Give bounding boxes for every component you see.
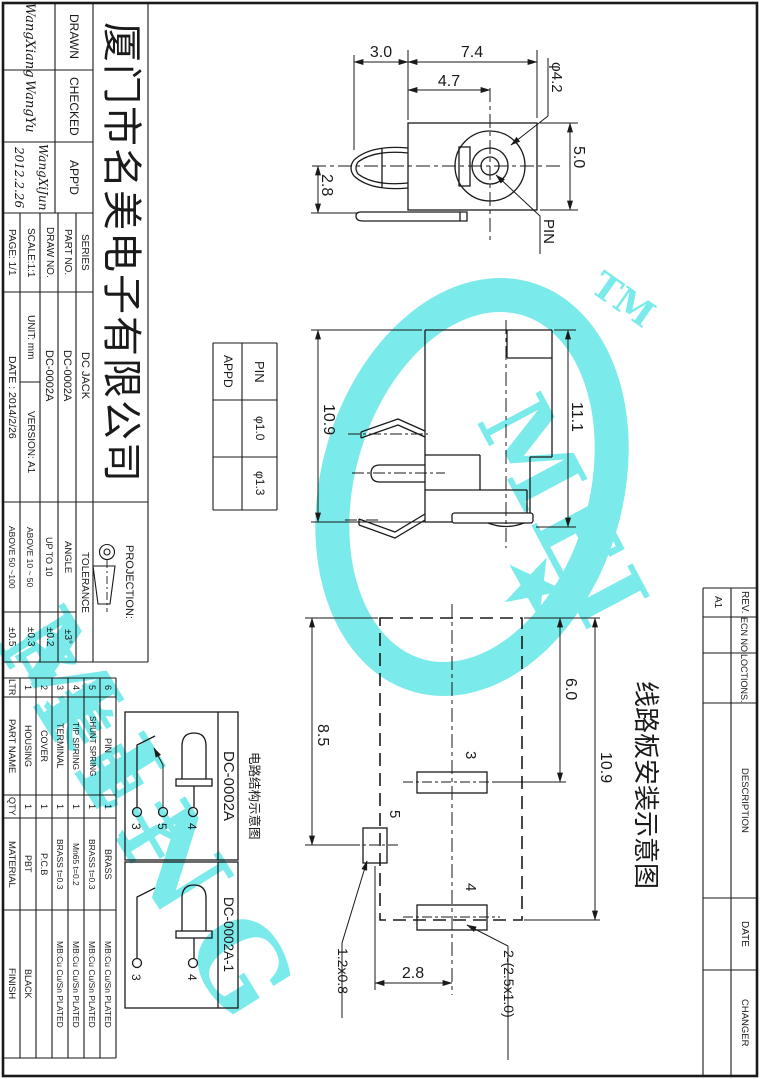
- parts-row1-finish: BLACK: [20, 910, 36, 1058]
- circuit-box1-label: DC-0002A: [218, 712, 238, 860]
- parts-row5-ltr: 5: [84, 678, 100, 697]
- pcb-pad4-label: 4: [462, 883, 479, 891]
- parts-row1-ltr: 1: [20, 678, 36, 697]
- parts-row6-name: PIN: [100, 697, 116, 795]
- circuit-caption: 电路结构示意图: [245, 743, 263, 848]
- part-no-value: DC-0002A: [58, 292, 76, 460]
- parts-row4-ltr: 4: [68, 678, 84, 697]
- tolerance-upto-label: UP TO 10: [40, 502, 58, 612]
- parts-row3-name: TERMINAL: [52, 697, 68, 795]
- pcb-callout-pad5: 1.2x0.8: [335, 948, 351, 994]
- scale-label: SCALE:1:1: [20, 213, 40, 292]
- appd-label: APP'D: [55, 142, 93, 213]
- dim-body: 7.4: [461, 44, 483, 61]
- dim-center: 4.7: [438, 73, 460, 90]
- parts-row2-ltr: 2: [36, 678, 52, 697]
- dim-pcb-bottom: 2.8: [402, 965, 424, 982]
- unit-label: UNIT: mm: [20, 292, 40, 382]
- pcb-pad5-label: 5: [386, 810, 403, 818]
- tolerance-angle-label: ANGLE: [58, 502, 76, 612]
- dim-fork: 3.0: [370, 44, 392, 61]
- tolerance-upto-value: ±0.2: [40, 612, 58, 662]
- tolerance-angle-value: ±3°: [58, 612, 76, 662]
- parts-row5-qty: 1: [84, 795, 100, 818]
- parts-row6-ltr: 6: [100, 678, 116, 697]
- dim-height: 5.0: [570, 146, 587, 168]
- appd-signature: WangXiJun 2012.2.26: [3, 142, 55, 213]
- parts-row5-finish: MB:Cu Cu/Sn PLATED: [84, 910, 100, 1058]
- circuit-box2-label: DC-0002A-1: [218, 862, 238, 1008]
- circuit-b2-pin4: 4: [185, 974, 199, 981]
- checked-label: CHECKED: [55, 70, 93, 142]
- pin-table-pin-header: PIN: [242, 343, 277, 400]
- watermark-c-ring: [289, 262, 655, 713]
- parts-row5-material: BRASS t=0.3: [84, 818, 100, 910]
- parts-header-ltr: LTR: [3, 678, 20, 697]
- parts-row4-finish: MB:Cu Cu/Sn PLATED: [68, 910, 84, 1058]
- parts-row6-finish: MB:Cu Cu/Sn PLATED: [100, 910, 116, 1058]
- circuit-b1-pin5: 5: [155, 823, 169, 830]
- pcb-caption: 线路板安装示意图: [630, 680, 662, 890]
- dim-below: 2.8: [318, 174, 335, 196]
- projection-symbol: [93, 545, 115, 613]
- pcb-pad3-label: 3: [462, 751, 479, 759]
- parts-row3-finish: MB:Cu Cu/Sn PLATED: [52, 910, 68, 1058]
- rev-value: A1: [703, 588, 731, 617]
- parts-header-finish: FINISH: [3, 910, 20, 1058]
- parts-row2-name: COVER: [36, 697, 52, 795]
- dim-side-left: 10.9: [320, 404, 337, 435]
- checked-signature: WangYu: [3, 70, 55, 142]
- circuit-b2-pin3: 3: [129, 974, 143, 981]
- parts-header-qty: QTY: [3, 795, 20, 818]
- parts-row3-material: BRASS t=0.3: [52, 818, 68, 910]
- draw-no-value: DC-0002A: [40, 292, 58, 460]
- projection-label: PROJECTION:: [116, 502, 142, 662]
- dim-pcb-left: 8.5: [314, 724, 331, 746]
- dim-pcb-inner: 6.0: [562, 678, 579, 700]
- tolerance-above50-label: ABOVE 50 ~100: [3, 502, 20, 612]
- circuit-b1-pin3: 3: [129, 823, 143, 830]
- ecn-no-label: ECN NO.: [731, 617, 757, 653]
- date-label: DATE : 2014/2/26: [3, 292, 20, 502]
- tolerance-above50-value: ±0.5: [3, 612, 20, 662]
- dim-side-right: 11.1: [568, 402, 585, 432]
- rev-label: REV.: [731, 588, 757, 617]
- pcb-callout-pads: 2-(2.5x1.0): [501, 950, 517, 1018]
- draw-no-label: DRAW NO.: [40, 213, 58, 292]
- pin-table-option-1: φ1.0: [242, 400, 277, 457]
- parts-row4-name: TIP SPRING: [68, 697, 84, 795]
- side-view: 10.9 11.1: [311, 320, 585, 548]
- parts-header-material: MATERIAL: [3, 818, 20, 910]
- drawing-sheet: MING MEI TM 名美电子 ★: [0, 0, 762, 1079]
- front-pin-label: PIN: [540, 219, 557, 244]
- parts-row4-material: Mn65 t=0.2: [68, 818, 84, 910]
- parts-row6-qty: 1: [100, 795, 116, 818]
- series-label: SERIES: [76, 213, 93, 292]
- parts-row1-material: PBT: [20, 818, 36, 910]
- parts-row2-material: P.C.B: [36, 818, 52, 910]
- front-view: 3.0 7.4 4.7 φ4.2 5.0 2.8 PIN: [311, 44, 587, 254]
- drawn-label: DRAWN: [55, 3, 93, 70]
- description-label: DESCRIPTION: [731, 703, 757, 898]
- version-label: VERSION: A1: [20, 382, 40, 502]
- pin-table-option-2: φ1.3: [242, 457, 277, 510]
- pin-table-appd-header: APPD: [213, 343, 242, 400]
- dim-pcb-outer: 10.9: [597, 752, 614, 783]
- appd-signature-date: 2012.2.26: [7, 142, 31, 213]
- rev-date-label: DATE: [731, 898, 757, 970]
- locations-label: LOCTIONS.: [731, 653, 757, 703]
- parts-row1-name: HOUSING: [20, 697, 36, 795]
- tolerance-above10-label: ABOVE 10 ~ 50: [20, 502, 40, 612]
- parts-row1-qty: 1: [20, 795, 36, 818]
- changer-label: CHANGER: [731, 970, 757, 1076]
- tolerance-label: TOLERANCE: [76, 502, 93, 662]
- drawn-signature: WangXiang: [3, 3, 55, 70]
- series-value: DC JACK: [76, 292, 93, 460]
- circuit-b1-pin4: 4: [185, 823, 199, 830]
- page-label: PAGE: 1/1: [3, 213, 20, 292]
- parts-row3-ltr: 3: [52, 678, 68, 697]
- parts-row2-qty: 1: [36, 795, 52, 818]
- tolerance-above10-value: ±0.3: [20, 612, 40, 662]
- parts-row6-material: BRASS: [100, 818, 116, 910]
- part-no-label: PART NO.: [58, 213, 76, 292]
- parts-row5-name: SHUNT SPRING: [84, 697, 100, 795]
- company-name: 厦门市名美电子有限公司: [93, 3, 148, 502]
- dim-dia: φ4.2: [548, 62, 565, 93]
- parts-row3-qty: 1: [52, 795, 68, 818]
- appd-signature-name: WangXiJun: [31, 142, 55, 213]
- parts-header-part-name: PART NAME: [3, 697, 20, 795]
- parts-row4-qty: 1: [68, 795, 84, 818]
